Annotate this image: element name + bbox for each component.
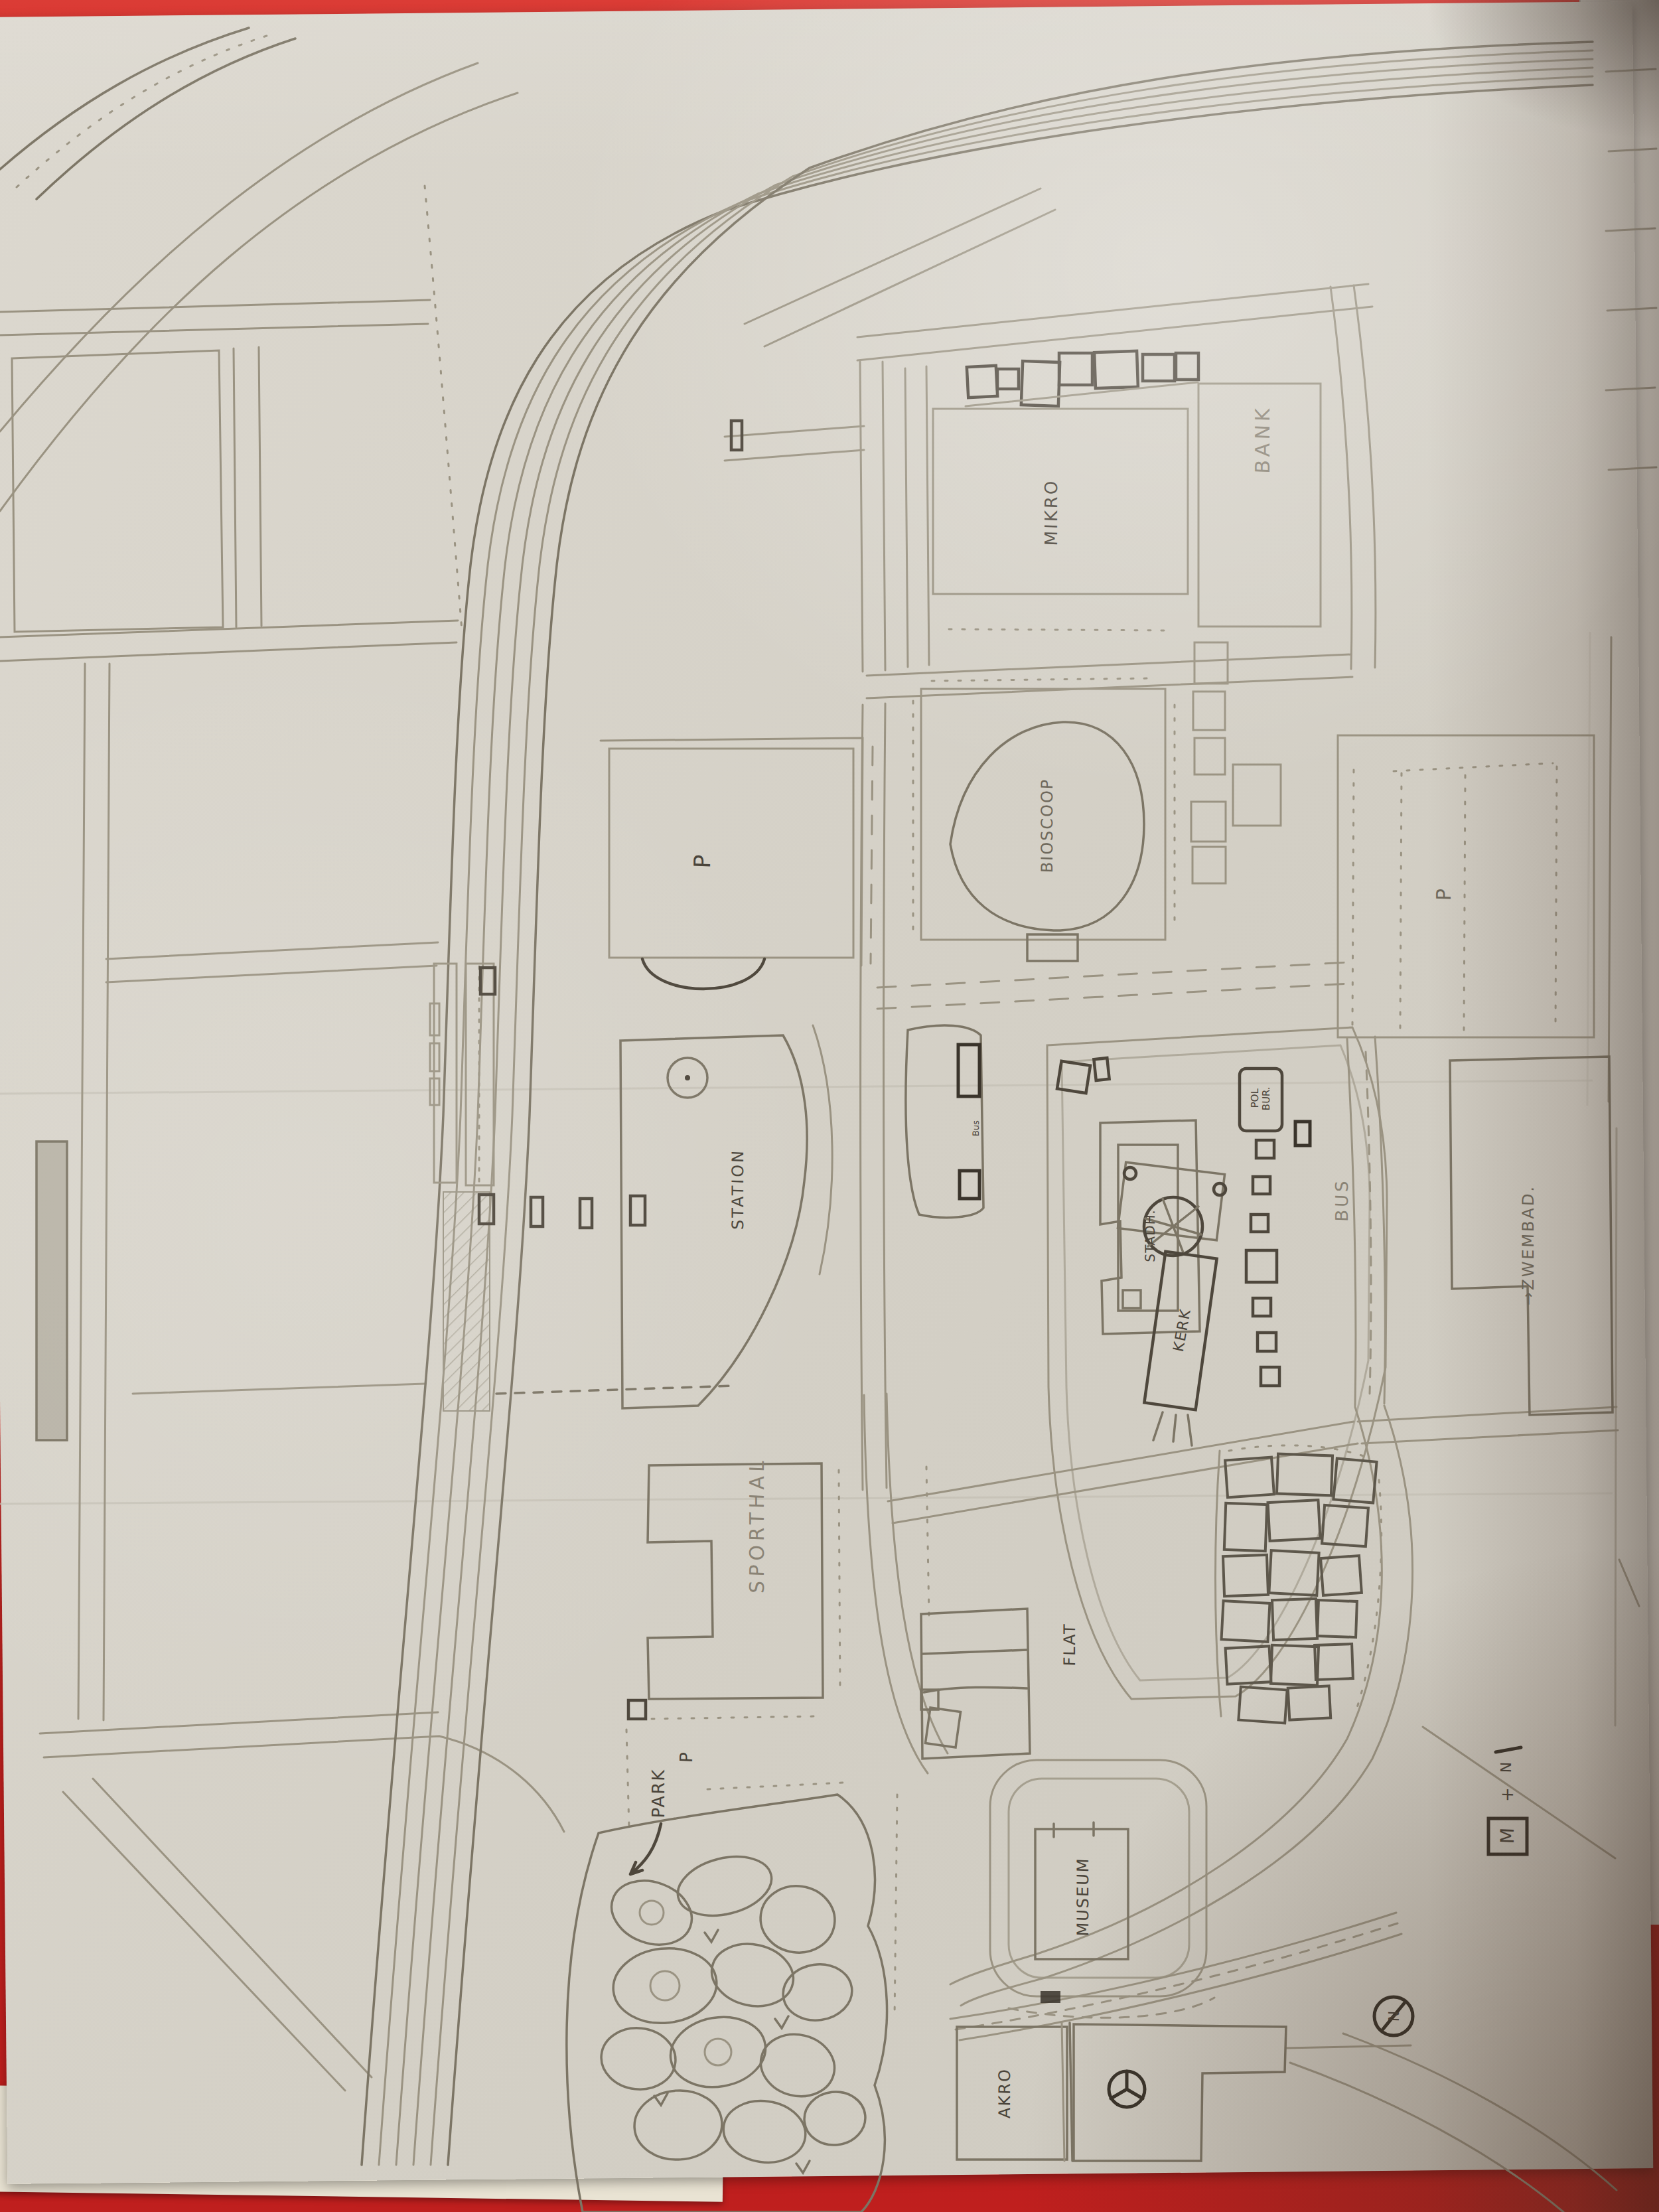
park-arrow <box>630 1824 661 1874</box>
legend-n-overline <box>1496 1747 1521 1752</box>
tree-mark <box>796 2161 810 2173</box>
label-museum: MUSEUM <box>1074 1857 1092 1937</box>
label-park: PARK <box>648 1768 668 1818</box>
parking-lot-right <box>1338 735 1594 1037</box>
bus-vehicle <box>960 1171 979 1199</box>
market-stall <box>1258 1333 1276 1351</box>
shop <box>1176 353 1198 380</box>
market-stall <box>1251 1215 1268 1232</box>
label-zwembad: →ZWEMBAD. <box>1519 1184 1538 1305</box>
label-bus-road: BUS <box>1332 1178 1352 1222</box>
label-bank: BANK <box>1251 405 1274 474</box>
photo-table-background: BANK MIKRO BIOSCOOP STATION SPORTHAL PAR… <box>0 0 1659 2212</box>
museum-flat <box>895 1609 1214 2018</box>
bus-bay <box>642 959 764 989</box>
symbol-parking-right: P <box>1432 888 1455 901</box>
train-car <box>580 1199 592 1228</box>
parking-lot-top <box>609 749 853 958</box>
label-stadhuis: STADH. <box>1142 1209 1158 1262</box>
symbol-parking-top: P <box>689 854 715 869</box>
market-stall <box>1261 1367 1279 1386</box>
shaded-road-strip <box>36 1142 67 1440</box>
label-sporthal: SPORTHAL <box>745 1457 768 1594</box>
symbol-parking-park: P <box>676 1752 696 1763</box>
market-stall <box>1246 1250 1277 1282</box>
label-station: STATION <box>729 1148 747 1230</box>
market-stall <box>1253 1298 1271 1316</box>
park-area <box>567 1783 887 2212</box>
shop <box>967 366 997 398</box>
hedge <box>707 1783 844 1789</box>
station-area <box>620 421 864 1408</box>
train-car <box>630 1196 645 1225</box>
bus-stop-icon <box>1041 1991 1060 2003</box>
railway <box>362 42 1593 2165</box>
symbol-legend-n: N <box>1498 1761 1514 1773</box>
shop <box>997 369 1019 389</box>
market-stall <box>1256 1140 1274 1158</box>
right-sheet-pencil-marks <box>1606 69 1656 1726</box>
bus-stop-icon <box>1295 1122 1310 1145</box>
shop <box>1094 351 1138 388</box>
ring-roads <box>745 188 1618 2212</box>
south-blocks <box>957 1747 1527 2161</box>
level-crossing <box>496 1386 735 1394</box>
symbol-compass-n: N <box>1386 2010 1402 2022</box>
tree-mark <box>705 1930 718 1942</box>
shop <box>1143 354 1175 381</box>
market-stall <box>1253 1177 1270 1194</box>
label-bioscoop: BIOSCOOP <box>1038 778 1056 873</box>
track-side-hatch <box>425 186 462 630</box>
old-town <box>1216 1445 1382 1724</box>
shop <box>1059 353 1092 385</box>
hedge <box>895 1795 897 2018</box>
north-blocks <box>601 351 1321 989</box>
label-mikro: MIKRO <box>1041 479 1061 546</box>
tree-mark <box>775 2016 788 2028</box>
label-akro: AKRO <box>995 2068 1014 2119</box>
label-bus-stop: Bus <box>971 1120 981 1136</box>
label-politiebureau: POL BUR. <box>1250 1076 1273 1120</box>
bus-vehicle <box>958 1045 979 1096</box>
symbol-legend-plus: + <box>1497 1787 1517 1803</box>
label-flat: FLAT <box>1060 1623 1079 1666</box>
train-car <box>531 1197 543 1226</box>
symbol-legend-m: M <box>1496 1827 1518 1844</box>
hand-drawn-town-map <box>0 0 1659 2212</box>
